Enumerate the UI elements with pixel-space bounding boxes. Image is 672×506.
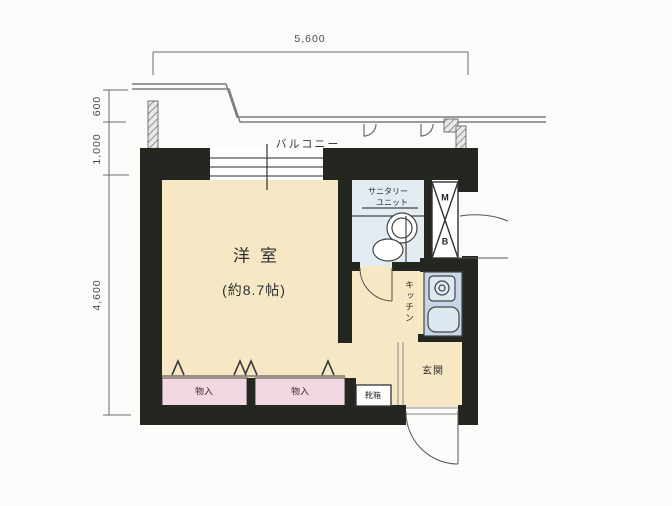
- meter-box-door: [460, 215, 508, 221]
- dimension-left: [103, 90, 131, 415]
- meter-box-letter-top: M: [441, 194, 449, 203]
- meter-box-letter-bottom: B: [442, 238, 449, 247]
- dimension-left-middle-label: 1,000: [92, 133, 103, 164]
- dimension-top-label: 5,600: [294, 34, 325, 45]
- balcony-partition-marks: [364, 124, 433, 136]
- dimension-left-upper-label: 600: [92, 96, 103, 117]
- entrance-door-swing: [406, 410, 458, 464]
- entrance-label: 玄関: [422, 367, 444, 377]
- dimension-top: [153, 52, 468, 75]
- balcony-railing: [132, 84, 546, 122]
- dimension-left-lower-label: 4,600: [92, 279, 103, 310]
- toilet: [373, 239, 403, 261]
- balcony-label: バルコニー: [276, 140, 341, 151]
- floor-plan: 5,600 600 1,000 4,600 バルコニー 洋室 (約8.7帖) サ…: [0, 0, 672, 506]
- sanitary-label-line2: ユニット: [376, 199, 408, 207]
- stove-burner: [429, 276, 455, 301]
- floor-plan-drawing: [0, 0, 672, 506]
- kitchen-counter: [424, 272, 462, 336]
- floors: [160, 178, 462, 407]
- kitchen-sink: [428, 307, 459, 332]
- main-room-label: 洋室: [233, 248, 287, 265]
- shoe-cabinet-label: 靴箱: [365, 392, 381, 400]
- main-room-size-label: (約8.7帖): [222, 283, 286, 297]
- kitchen-label: キッチン: [404, 280, 413, 338]
- storage-left-label: 物入: [195, 388, 213, 397]
- storage-right-label: 物入: [291, 388, 309, 397]
- sanitary-label-line1: サニタリー: [368, 188, 408, 196]
